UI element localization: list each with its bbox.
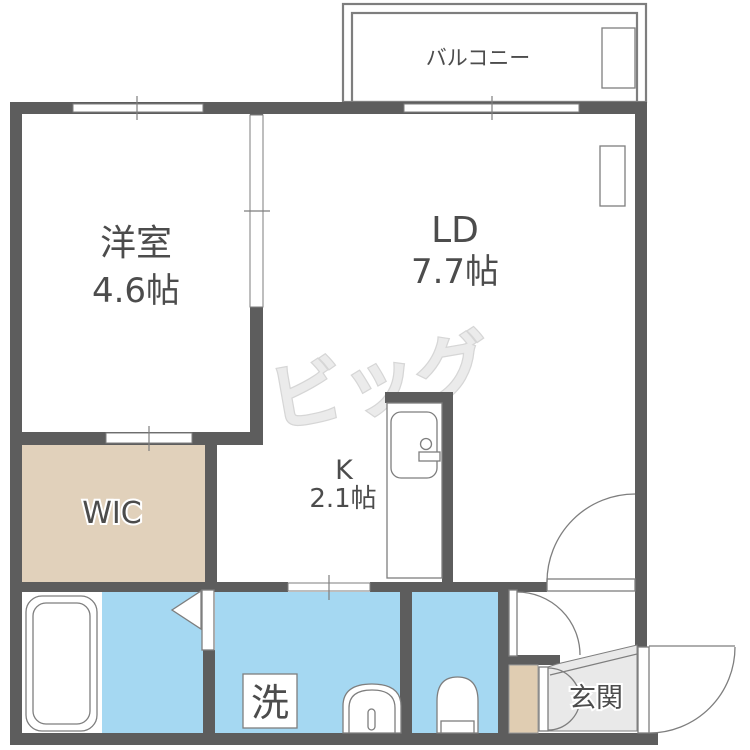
bathtub-outer — [26, 596, 97, 731]
genkan-side-panel — [539, 667, 548, 731]
floorplan-page: ビッグ — [0, 0, 750, 750]
kitchen-label: K — [335, 455, 354, 486]
entrance-label: 玄関 — [569, 683, 623, 714]
kitchen-counter — [387, 403, 442, 578]
western-room-size: 4.6帖 — [92, 271, 180, 311]
washer-label: 洗 — [251, 681, 289, 725]
wall-right — [635, 102, 647, 647]
kitchen-drain — [419, 452, 440, 461]
kitchen-size: 2.1帖 — [309, 484, 376, 514]
living-dining-size: 7.7帖 — [411, 252, 499, 292]
shoe-cabinet — [509, 665, 538, 733]
floor-plan: ビッグ — [0, 0, 750, 750]
toilet-seat-base — [441, 721, 474, 733]
wall-washroom-toilet — [400, 592, 412, 733]
living-dining-label: LD — [431, 210, 479, 251]
western-room-label: 洋室 — [100, 223, 172, 264]
wall-kitchen-right — [442, 392, 453, 592]
wall-hall-south — [498, 655, 560, 665]
wall-bottom — [10, 733, 658, 745]
kitchen-faucet — [421, 439, 432, 450]
wic-label: WIC — [82, 496, 141, 531]
balcony-partition — [602, 28, 635, 88]
wall-left — [10, 102, 22, 745]
wall-wic-right — [205, 432, 217, 592]
entrance-door-leaf — [638, 647, 649, 733]
entrance-door-swing-arc — [649, 647, 735, 733]
washbasin-faucet — [368, 709, 375, 730]
wall-lower-left — [10, 582, 288, 592]
toilet-door-leaf — [509, 590, 517, 656]
wall-lower-mid — [370, 582, 547, 592]
balcony-label: バルコニー — [426, 46, 531, 70]
ld-door-leaf — [547, 579, 635, 591]
wall-bath-washroom — [203, 650, 215, 733]
window-western-room — [73, 104, 203, 112]
bath-door-frame — [202, 590, 214, 650]
